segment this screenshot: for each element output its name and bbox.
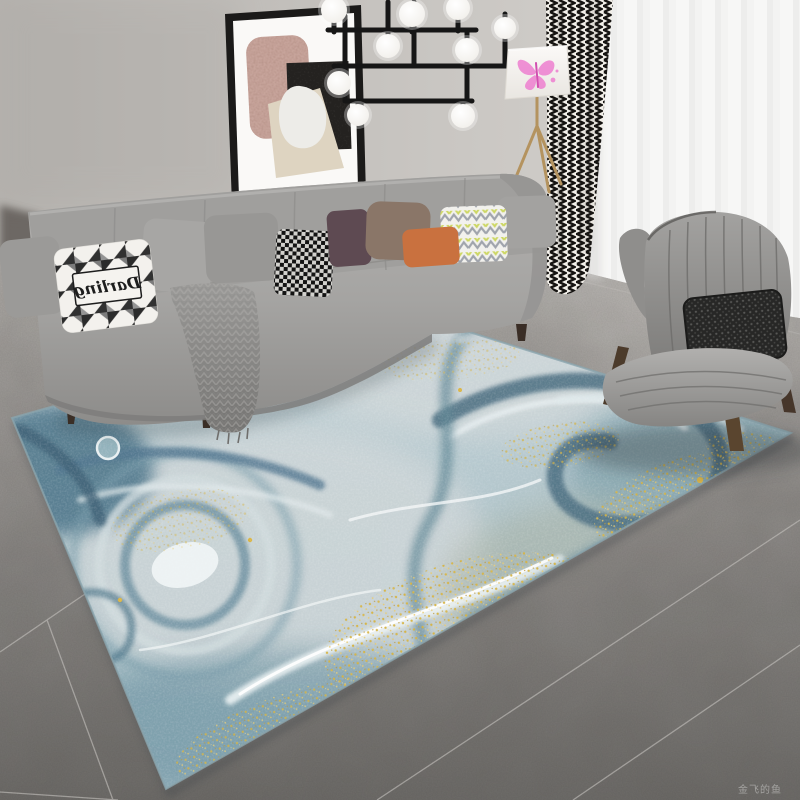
bulb [324, 68, 354, 98]
pillow-darling: Darling [53, 238, 159, 333]
pillow-houndstooth [273, 229, 334, 298]
pillow-grey-3 [203, 212, 280, 284]
screenshot-root: Darling 金飞的鱼 [0, 0, 800, 800]
living-room-photo: Darling [0, 0, 800, 800]
bulb [452, 35, 482, 65]
pillow-orange [402, 226, 461, 268]
bulb [344, 101, 372, 129]
wall-corner-shade [0, 0, 240, 200]
bulb [448, 101, 478, 131]
bulb [373, 31, 403, 61]
pillow-plum [326, 209, 372, 268]
pillow-grey-1 [0, 235, 66, 319]
bulb [491, 14, 519, 42]
